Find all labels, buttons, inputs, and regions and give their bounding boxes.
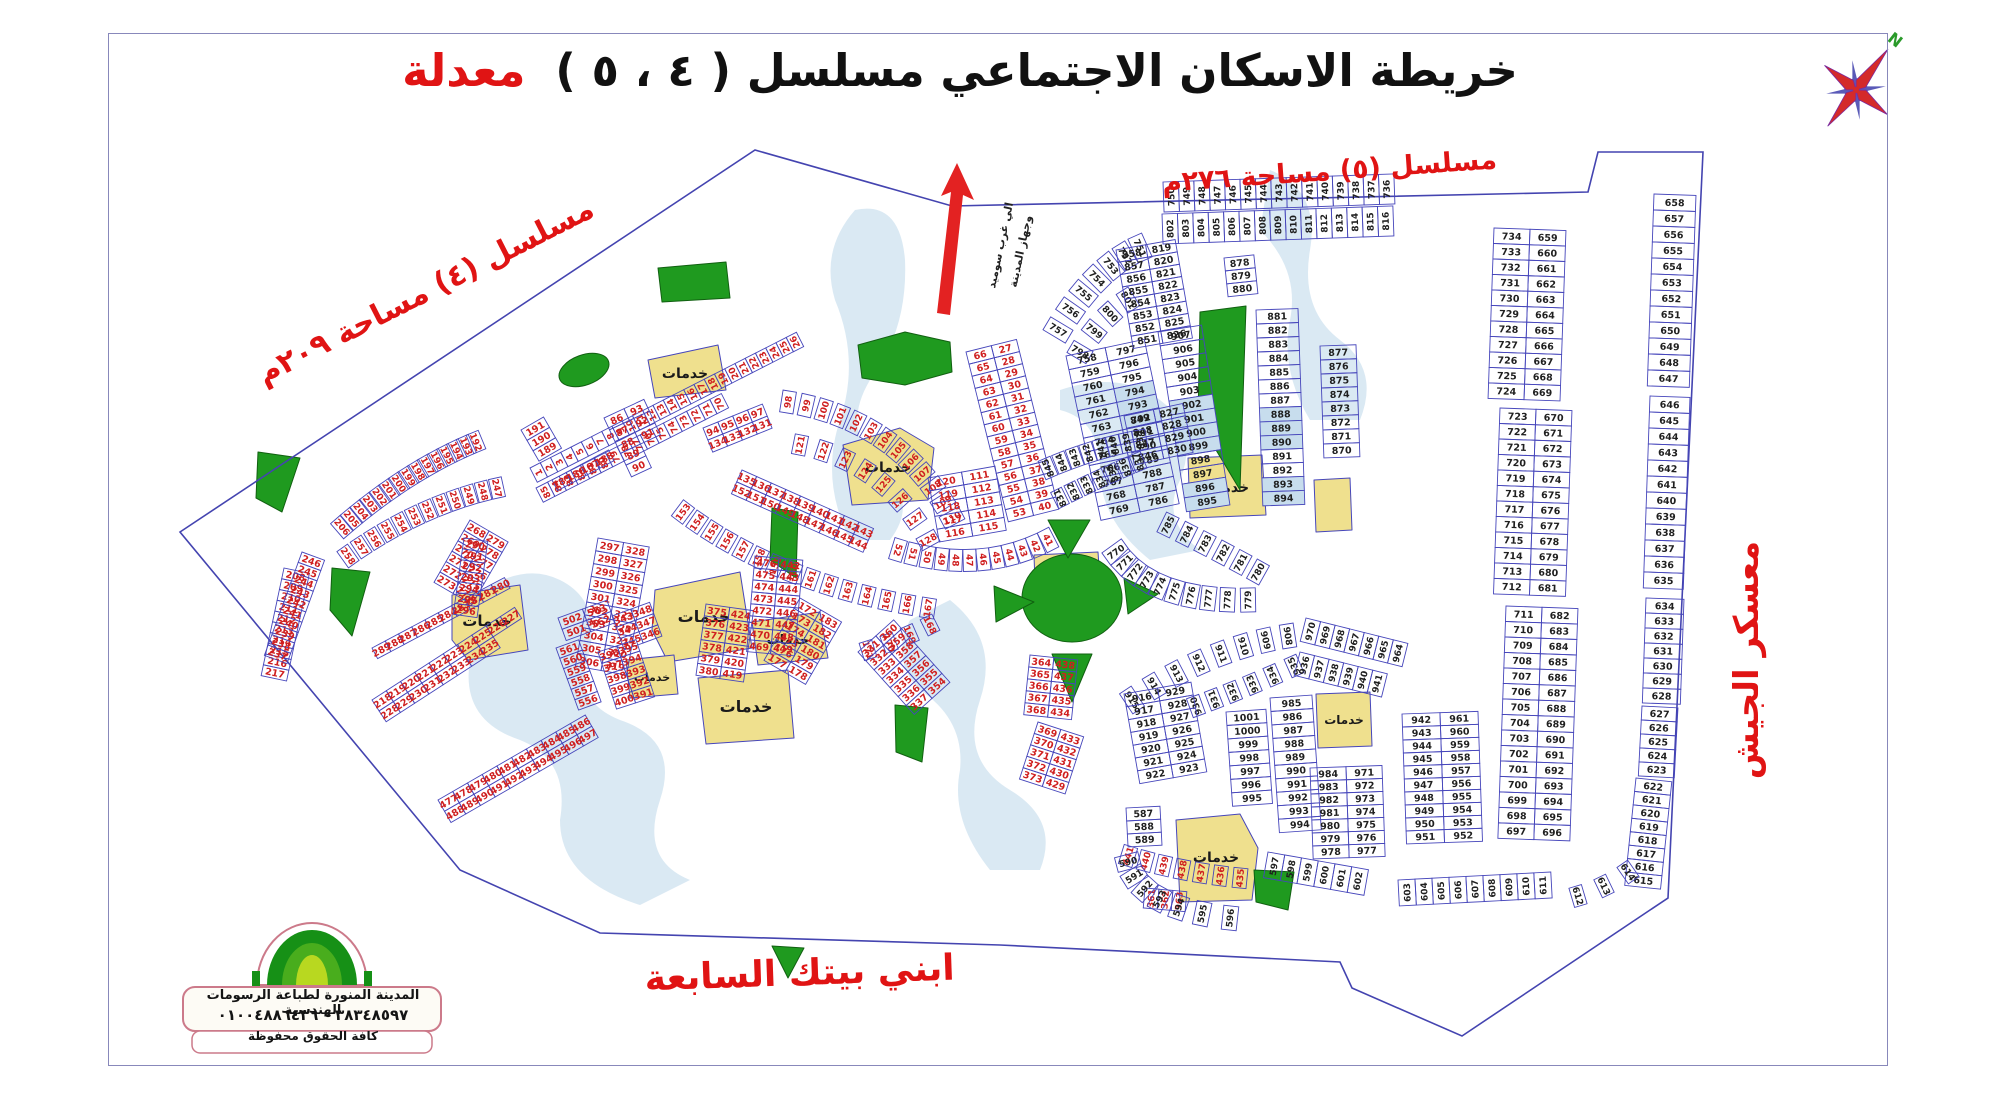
- logo-line-3: كافة الحقوق محفوظة: [183, 1029, 443, 1043]
- logo-line-2: ٣٨٣٤٨٥٩٧ - ٠١٠٠٤٨٨٦٤٣٦: [183, 1006, 443, 1024]
- page-border-frame: [108, 33, 1888, 1066]
- map-title: خريطة الاسكان الاجتماعي مسلسل ( ٤ ، ٥ ) …: [0, 44, 1920, 97]
- map-title-suffix: معدلة: [402, 44, 525, 97]
- map-title-main: خريطة الاسكان الاجتماعي مسلسل ( ٤ ، ٥ ): [555, 44, 1518, 97]
- map-page: خدماتخدماتخدماتخدماتخدماتخدماتخدماتخدمات…: [0, 0, 2000, 1100]
